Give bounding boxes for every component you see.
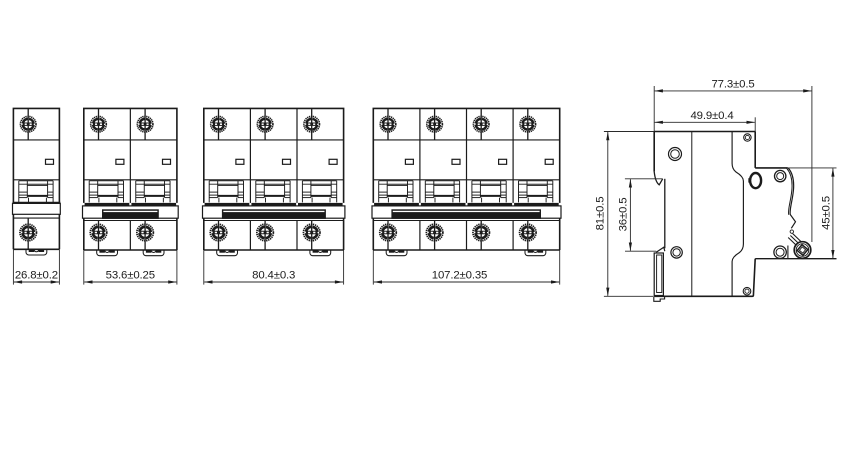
svg-text:45±0.5: 45±0.5 — [821, 196, 833, 230]
svg-text:53.6±0.25: 53.6±0.25 — [106, 270, 155, 282]
svg-text:77.3±0.5: 77.3±0.5 — [711, 79, 754, 91]
svg-text:80.4±0.3: 80.4±0.3 — [252, 270, 295, 282]
svg-text:107.2±0.35: 107.2±0.35 — [432, 270, 487, 282]
svg-text:49.9±0.4: 49.9±0.4 — [690, 110, 733, 122]
svg-text:36±0.5: 36±0.5 — [617, 198, 629, 232]
svg-text:81±0.5: 81±0.5 — [595, 197, 607, 231]
svg-text:26.8±0.2: 26.8±0.2 — [15, 270, 58, 282]
